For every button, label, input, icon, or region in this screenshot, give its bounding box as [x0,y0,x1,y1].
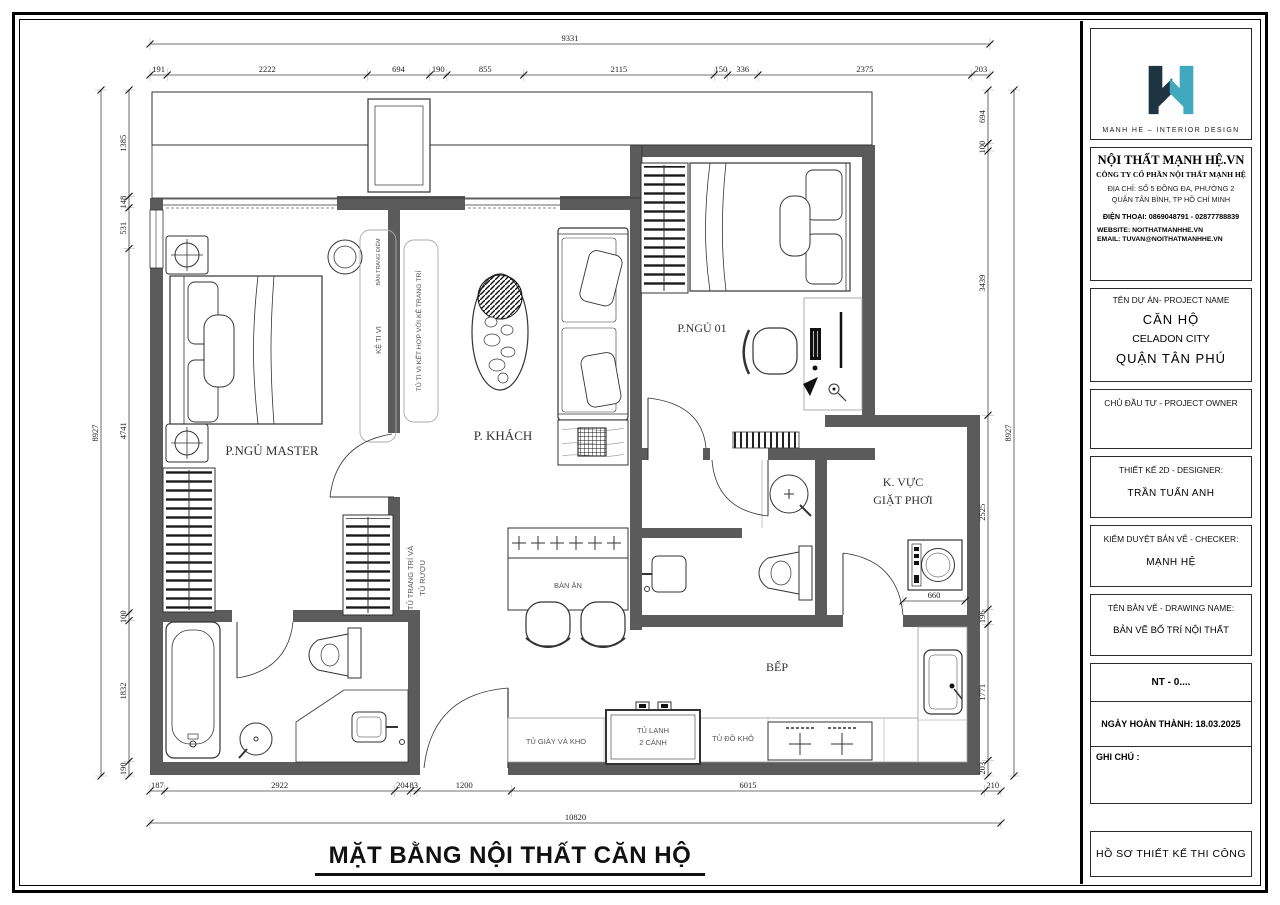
vanity [296,690,408,762]
bolster [780,196,810,256]
dim-chain-top_overall: 9331 [147,33,994,50]
room-label-laundry-1: K. VỰC [883,475,923,489]
dim-label: 694 [392,64,406,74]
dim-label: 150 [715,64,728,74]
vent-grille [733,432,799,448]
dim-label: 2375 [856,64,873,74]
dressing-stool [328,240,362,274]
dim-label: 100 [977,141,987,154]
dim-chain-laundry: 660 [900,590,969,607]
dim-label: 1771 [977,684,987,701]
mouse [813,366,818,371]
bed-01 [690,163,850,291]
dim-label: 190 [432,64,445,74]
stove [768,722,872,760]
dim-label: 190 [118,762,128,775]
dim-chain-right_overall: 8927 [1003,87,1020,780]
drawing-meta-box: NT - 0.... NGÀY HOÀN THÀNH: 18.03.2025 G… [1090,663,1252,804]
designer-box: THIẾT KẾ 2D - DESIGNER: TRẦN TUẤN ANH [1090,456,1252,518]
owner-heading: CHỦ ĐẦU TƯ - PROJECT OWNER [1093,398,1249,408]
wc2-door [712,460,768,516]
dim-label: 203 [977,762,987,775]
wardrobe-wine [343,515,393,615]
window-left [150,210,163,268]
title-block: MANH HE – INTERIOR DESIGN NỘI THẤT MẠNH … [1080,21,1259,884]
room-label-living: P. KHÁCH [474,428,533,443]
room-label-laundry-2: GIẶT PHƠI [873,493,932,507]
sink [642,556,686,592]
bed01-door [648,398,706,460]
drawing-sheet: P.NGỦ MASTER P. KHÁCH P.NGỦ 01 K. VỰC GI… [0,0,1280,905]
company-address-1: ĐỊA CHỈ: SỐ 5 ĐỒNG ĐA, PHƯỜNG 2 [1094,184,1248,193]
logo-caption: MANH HE – INTERIOR DESIGN [1102,127,1239,134]
dim-chain-bottom: 18729222048312006015210 [147,780,1005,797]
label-dressing-table: BÀN TRANG ĐIỂM [375,238,382,286]
dim-label: 196 [977,610,987,623]
dim-label: 1385 [118,135,128,152]
manh-he-logo [1140,59,1202,121]
label-wine-cabinet-2: TỦ RƯỢU [418,560,427,596]
dim-chain-left: 138514853147411001832190 [118,87,135,780]
dim-label: 10820 [565,812,586,822]
speaker-grille [578,428,606,456]
company-email: EMAIL: TUVAN@NOITHATMANHHE.VN [1094,236,1248,243]
entrance-door [424,688,508,768]
dim-label: 2922 [271,780,288,790]
dining-chair [526,602,570,647]
label-fridge-1: TỦ LẠNH [637,726,669,735]
document-type-box: HỒ SƠ THIẾT KẾ THI CÔNG [1090,831,1252,877]
dim-label: 100 [118,610,128,623]
label-tv-shelf: KỆ TI VI [374,326,383,354]
drawing-heading: TÊN BẢN VẼ - DRAWING NAME: [1093,603,1249,613]
dimension-lines: 9331191222269419085521151503362375203892… [90,33,1020,829]
dim-label: 8927 [90,425,100,442]
dim-label: 9331 [562,33,579,43]
drawing-title-wrap: MẶT BẰNG NỘI THẤT CĂN HỘ [140,842,880,876]
label-wine-cabinet-1: TỦ TRANG TRÍ VÀ [406,546,415,610]
nightstand [166,236,208,274]
drawing-title: MẶT BẰNG NỘI THẤT CĂN HỘ [315,842,706,876]
dining-chair [581,602,625,647]
company-info-box: NỘI THẤT MẠNH HỆ.VN CÔNG TY CỔ PHẦN NỘI … [1090,147,1252,281]
drawing-name-box: TÊN BẢN VẼ - DRAWING NAME: BẢN VẼ BỐ TRÍ… [1090,594,1252,656]
dim-label: 694 [977,110,987,124]
shower [770,475,811,516]
dim-label: 336 [736,64,749,74]
dim-label: 4741 [118,422,128,439]
label-dry-cabinet: TỦ ĐỒ KHÔ [712,733,754,743]
company-logo-box: MANH HE – INTERIOR DESIGN [1090,28,1252,140]
toilet [309,628,361,678]
room-label-master: P.NGỦ MASTER [225,443,319,458]
dim-label: 1200 [456,780,473,790]
wardrobe-bed01 [641,163,688,293]
project-line-3: QUẬN TÂN PHÚ [1093,351,1249,366]
wardrobe-master [163,468,215,612]
notes-heading: GHI CHÚ : [1091,747,1251,803]
bathtub [166,622,220,758]
designer-heading: THIẾT KẾ 2D - DESIGNER: [1093,465,1249,475]
company-phone: ĐIỆN THOẠI: 0869048791 - 02877788839 [1094,212,1248,221]
floor-plan-svg: P.NGỦ MASTER P. KHÁCH P.NGỦ 01 K. VỰC GI… [0,0,1100,905]
dim-label: 531 [118,222,128,235]
bed-master [170,276,322,424]
counter-right [918,627,967,762]
drawing-number: NT - 0.... [1091,664,1251,702]
company-address-2: QUẬN TÂN BÌNH, TP HỒ CHÍ MINH [1094,195,1248,204]
label-fridge-2: 2 CÁNH [639,738,667,747]
checker-name: MẠNH HỆ [1093,557,1249,568]
dim-label: 204 [396,780,410,790]
laundry [843,540,962,615]
dim-label: 8927 [1003,425,1013,442]
rug [472,274,528,390]
bolster [204,315,234,387]
project-owner-box: CHỦ ĐẦU TƯ - PROJECT OWNER [1090,389,1252,449]
checker-heading: KIỂM DUYỆT BẢN VẼ - CHECKER: [1093,534,1249,544]
master-door [330,434,394,497]
dim-label: 203 [974,64,987,74]
toilet [759,546,812,600]
label-dining-table: BÀN ĂN [554,581,582,590]
dim-label: 6015 [739,780,756,790]
dim-label: 187 [151,780,164,790]
dim-label: 191 [152,64,165,74]
dim-label: 2115 [611,64,628,74]
dim-chain-bottom_overall: 10820 [147,812,1005,829]
drawing-name: BẢN VẼ BỐ TRÍ NỘI THẤT [1093,625,1249,636]
dim-label: 1832 [118,683,128,700]
nightstand [166,424,208,462]
master-bedroom [163,230,396,615]
dim-chain-left_overall: 8927 [90,87,107,780]
company-name: NỘI THẤT MẠNH HỆ.VN [1094,153,1248,168]
project-line-2: CELADON CITY [1093,333,1249,345]
keyboard [810,328,821,360]
checker-box: KIỂM DUYỆT BẢN VẼ - CHECKER: MẠNH HỆ [1090,525,1252,587]
label-tv-cabinet: TỦ TI VI KẾT HỢP VỚI KỆ TRANG TRÍ [413,271,423,392]
dim-label: 3439 [977,275,987,292]
dim-label: 148 [118,196,128,209]
designer-name: TRẦN TUẤN ANH [1093,488,1249,499]
shower-drain [239,723,272,758]
washing-machine [908,540,962,590]
sideboard [558,420,628,465]
label-shoe-cabinet: TỦ GIÀY VÀ KHO [526,737,586,746]
project-heading: TÊN DỰ ÁN- PROJECT NAME [1093,295,1249,305]
master-bath [166,622,408,762]
sofa [558,228,628,420]
dim-label: 2222 [259,64,276,74]
laundry-door [843,553,903,615]
pillow [806,170,842,220]
company-website: WEBSITE: NOITHATMANHHE.VN [1094,227,1248,234]
desk-item [803,377,818,396]
pillow [806,234,842,284]
desk-chair [744,328,797,374]
dim-label: 83 [410,780,419,790]
company-legal-name: CÔNG TY CỔ PHẦN NỘI THẤT MẠNH HỆ [1094,170,1248,179]
dim-label: 2525 [977,504,987,521]
room-label-kitchen: BẾP [766,659,788,674]
completion-date: NGÀY HOÀN THÀNH: 18.03.2025 [1091,702,1251,747]
project-line-1: CĂN HỘ [1093,312,1249,327]
bench [508,528,628,558]
bath-door [237,622,293,678]
living-room [404,228,628,768]
dim-label: 210 [986,780,999,790]
dim-chain-top: 191222269419085521151503362375203 [147,64,994,81]
room-label-bed01: P.NGỦ 01 [677,321,726,335]
dim-label: 855 [479,64,492,74]
dim-label: 660 [928,590,941,600]
project-name-box: TÊN DỰ ÁN- PROJECT NAME CĂN HỘ CELADON C… [1090,288,1252,382]
